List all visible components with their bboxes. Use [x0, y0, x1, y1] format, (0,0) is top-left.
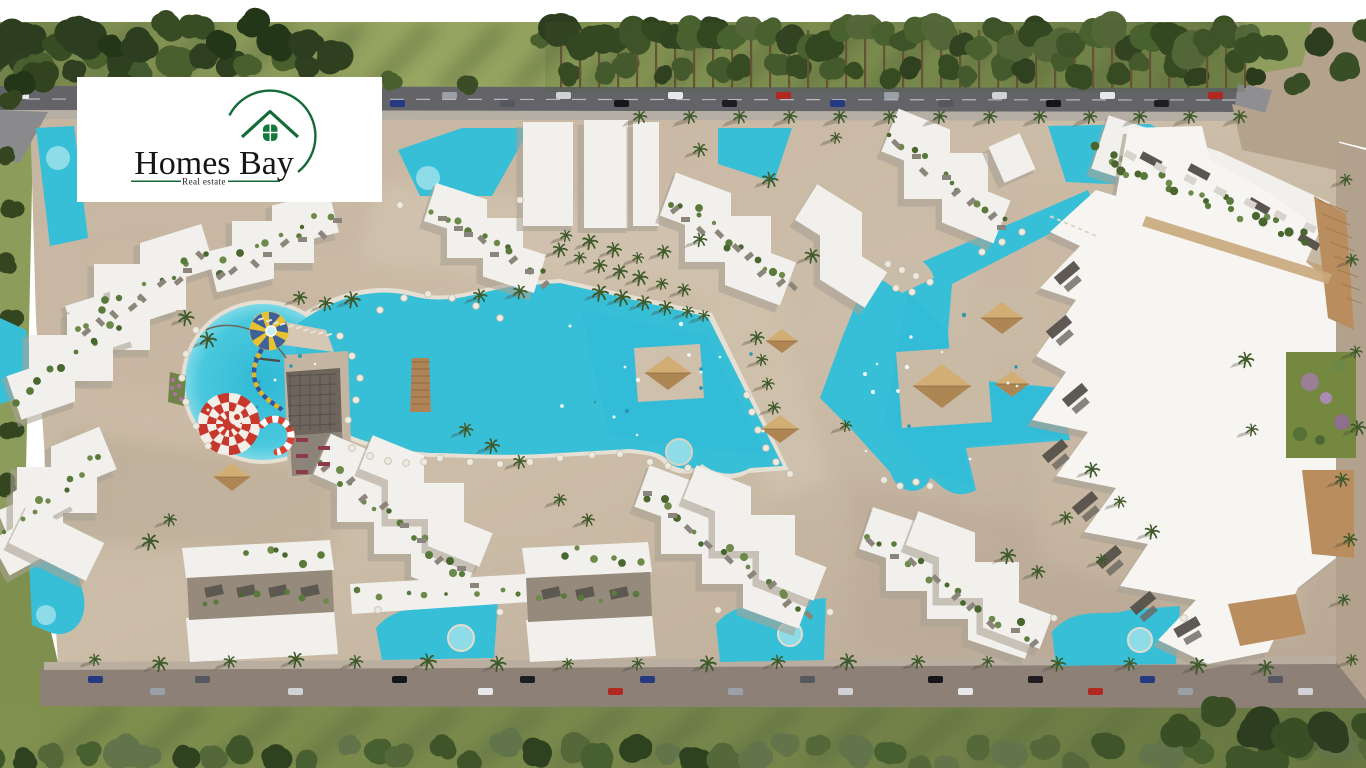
svg-text:Real estate: Real estate: [182, 177, 226, 187]
